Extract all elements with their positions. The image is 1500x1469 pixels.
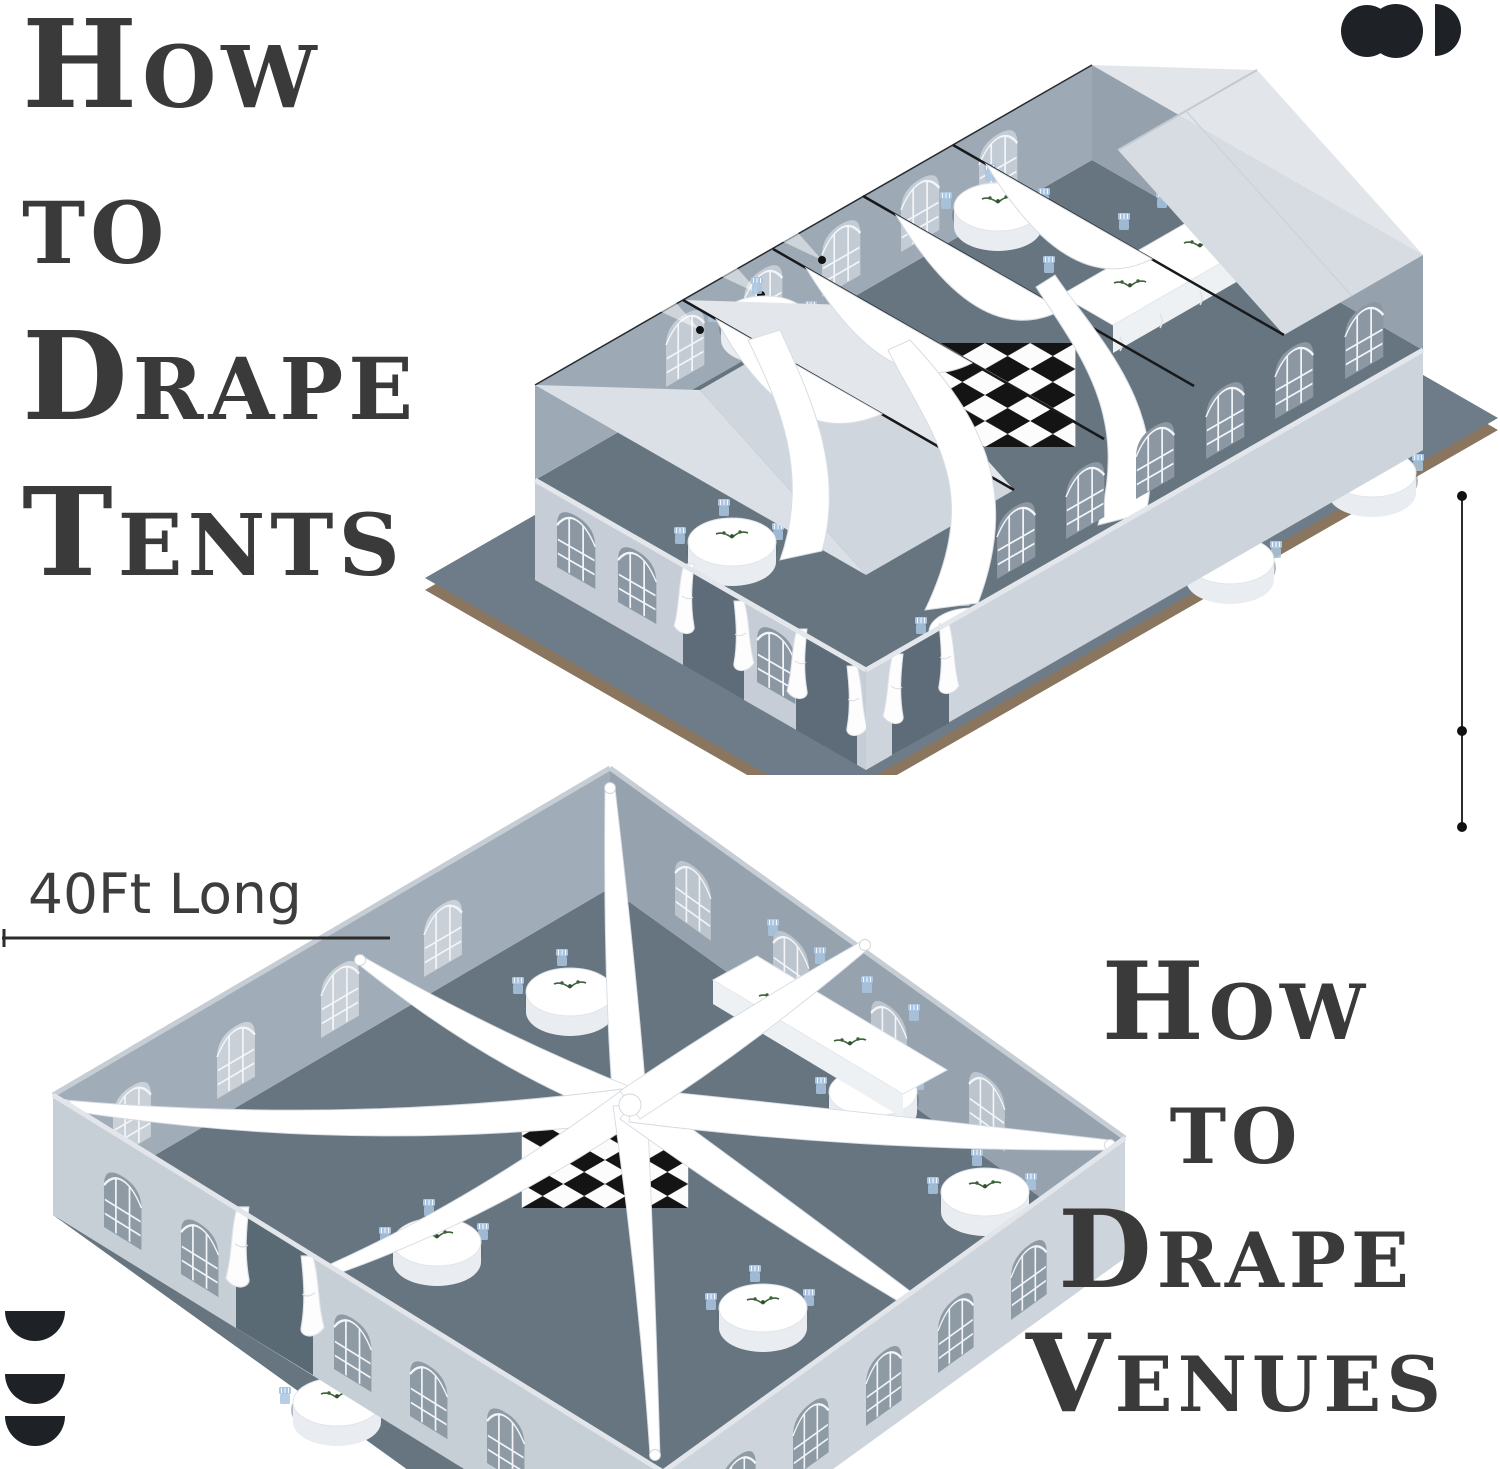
title-line: Drape	[22, 298, 418, 454]
title-line: Tents	[22, 454, 418, 610]
title-line: How	[22, 0, 418, 142]
title-how-to-drape-venues: How to Drape Venues	[980, 940, 1492, 1436]
title-line: to	[980, 1064, 1492, 1188]
three-overlapping-circles-icon	[1340, 2, 1490, 62]
length-label: 40Ft Long	[28, 862, 302, 926]
title-line: Venues	[980, 1312, 1492, 1436]
tent-illustration	[330, 55, 1500, 775]
page: How to Drape Tents How to Drape Venues 4…	[0, 0, 1500, 1469]
title-line: Drape	[980, 1188, 1492, 1312]
three-half-circles-icon	[3, 1308, 73, 1453]
title-line: How	[980, 940, 1492, 1064]
title-line: to	[22, 142, 418, 298]
title-how-to-drape-tents: How to Drape Tents	[22, 0, 418, 610]
